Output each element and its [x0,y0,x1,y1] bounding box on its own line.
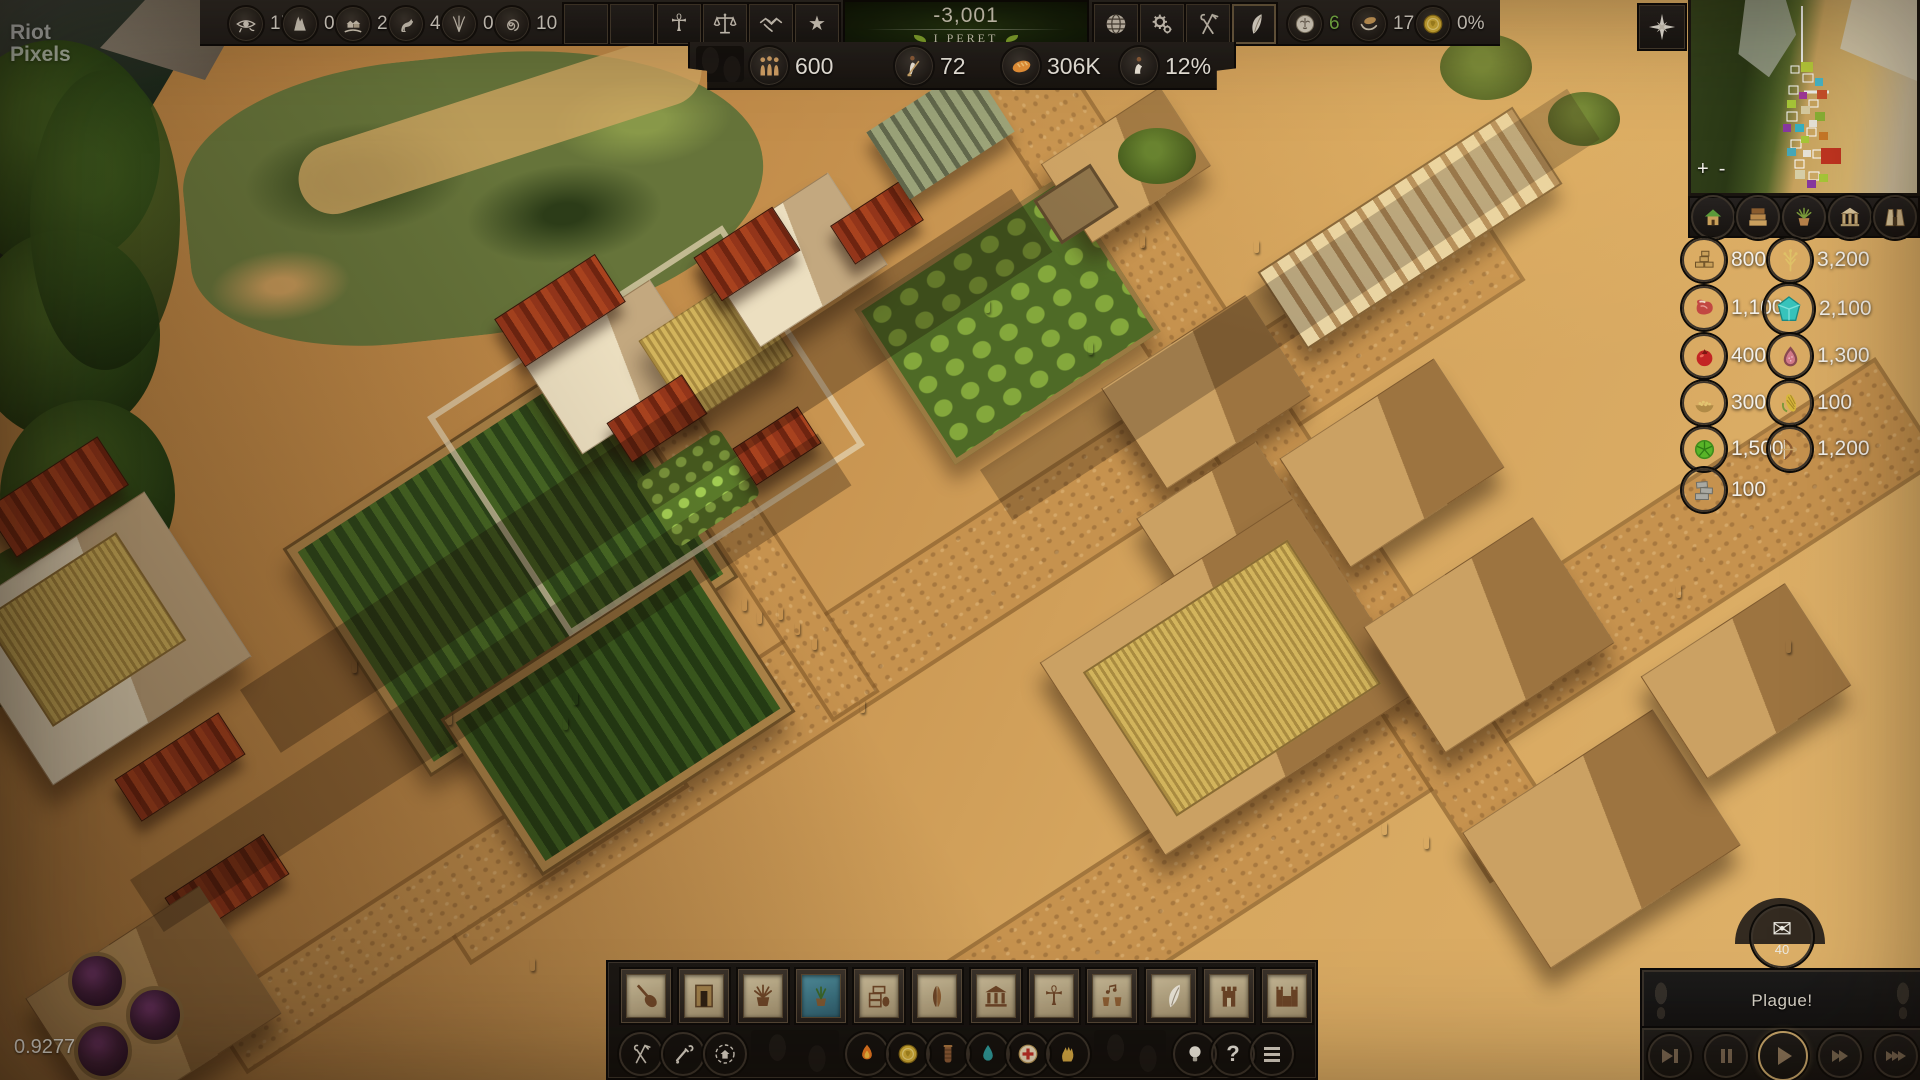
filter-housing-button[interactable] [1691,195,1735,239]
resource-value: 100 [1731,478,1766,502]
watermark: Riot Pixels [10,22,71,66]
grain-bowl-icon [1682,381,1726,425]
envelope-icon: ✉ [1772,918,1792,942]
category-temples-button[interactable] [969,967,1023,1025]
trade-button[interactable] [747,2,795,46]
stat-spiral[interactable]: 10 [493,5,557,43]
lightbulb-icon [1183,1042,1207,1066]
watermark-line2: Pixels [10,44,71,66]
coin-icon [896,1042,920,1066]
messages-count: 40 [1775,942,1789,957]
achievements-button[interactable]: ★ [793,2,841,46]
skip-icon [1662,1049,1678,1063]
recenter-home-button[interactable] [703,1032,747,1076]
resource-turquoise[interactable]: 2,100 [1764,284,1872,334]
droplet-icon [976,1042,1000,1066]
temple-facade-icon [976,974,1016,1018]
pause-button[interactable] [1704,1034,1748,1078]
stat-workers[interactable]: 72 [893,45,966,87]
eye-of-horus-icon [227,5,265,43]
stat-unemployed[interactable]: 12% [1118,45,1211,87]
pillar-icon [936,1042,960,1066]
step-day-button[interactable] [1648,1034,1692,1078]
minimap-zoom-in[interactable]: + [1697,159,1709,179]
overlay-health-button[interactable] [1006,1032,1050,1076]
corn-icon [1768,381,1812,425]
resource-value: 1,300 [1817,344,1870,368]
help-button[interactable]: ? [1211,1032,1255,1076]
resource-value: 1,200 [1817,437,1870,461]
handshake-icon [758,11,784,37]
reed-basket-icon [743,974,783,1018]
ration-hand-icon [1350,5,1388,43]
stone-icon [1682,468,1726,512]
gold-hand-icon [1056,1042,1080,1066]
moon-face-icon [1286,5,1324,43]
jackal-icon [281,5,319,43]
overlay-tax-button[interactable] [886,1032,930,1076]
reeds-icon [440,5,478,43]
world-map-button[interactable] [1092,2,1140,46]
overlay-water-button[interactable] [966,1032,1010,1076]
scribe-button[interactable] [1230,2,1278,46]
notification-panel[interactable]: Plague! [1642,970,1920,1032]
rule-tool-button[interactable] [619,1032,663,1076]
category-education-button[interactable] [1144,967,1198,1025]
pause-icon [1721,1049,1732,1063]
resource-value: 100 [1817,391,1852,415]
resource-value: 3,200 [1817,248,1870,272]
ankh-button[interactable]: ☥ [655,2,703,46]
fastest-icon [1886,1051,1906,1061]
justice-button[interactable] [701,2,749,46]
horn-ornament [1890,978,1916,1022]
bricks-icon [1682,238,1726,282]
medical-cross-icon [1016,1042,1040,1066]
fig-icon [1768,334,1812,378]
picker-tool-button[interactable] [661,1032,705,1076]
resource-value: 2,100 [1819,297,1872,321]
year-value: -3,001 [845,4,1087,28]
stat-jackal[interactable]: 0 [281,5,335,43]
overlay-religion-button[interactable] [1046,1032,1090,1076]
feather-icon [1151,974,1191,1018]
gear-icon [1149,11,1175,37]
feather-icon [1241,11,1267,37]
brick-building-icon [1745,204,1771,230]
category-housing-button[interactable] [677,967,731,1025]
category-monuments-button[interactable] [1260,967,1314,1025]
fast-icon [1832,1050,1848,1062]
home-circle-icon [713,1042,737,1066]
ibis-icon [387,5,425,43]
stat-value: 0 [324,13,335,35]
empty-slot-button[interactable] [608,2,656,46]
bow-icon [1768,427,1812,471]
category-farming-button[interactable] [736,967,790,1025]
wheat-icon [1768,238,1812,282]
crook-flail-icon [629,1042,653,1066]
build-toolbar: ☥ ? [606,960,1318,1080]
stat-reeds[interactable]: 0 [440,5,494,43]
tower-icon [1209,974,1249,1018]
empty-slot-button[interactable] [562,2,610,46]
eyedropper-icon [671,1042,695,1066]
stat-morale[interactable]: 6 [1286,5,1340,43]
world-icon [1103,11,1129,37]
pomegranate-icon [1682,334,1726,378]
music-cups-icon [1092,974,1132,1018]
minimap[interactable]: + - [1688,0,1920,196]
filter-temples-button[interactable] [1828,195,1872,239]
stat-value: 0% [1457,13,1484,35]
workers-value: 72 [940,53,966,80]
scales-icon [712,11,738,37]
play-button[interactable] [1758,1031,1808,1080]
notification-text: Plague! [1751,991,1812,1011]
resource-figs[interactable]: 1,300 [1768,334,1870,378]
compass-star-icon [1647,12,1677,42]
resource-pomegranate[interactable]: 400 [1682,334,1766,378]
stat-value: 10 [536,13,557,35]
turquoise-icon [1764,284,1814,334]
house-icon [1700,204,1726,230]
door-icon [684,974,724,1018]
overlay-structure-button[interactable] [926,1032,970,1076]
idle-person-icon [1118,45,1160,87]
date-divider [867,29,1065,30]
bread-icon [1000,45,1042,87]
resource-wheat[interactable]: 3,200 [1768,238,1870,282]
filter-industry-button[interactable] [1736,195,1780,239]
meat-icon [1682,286,1726,330]
debug-value: 0.9277 [14,1036,75,1059]
water-reeds-icon [801,974,841,1018]
category-religion-button[interactable] [910,967,964,1025]
shelter-icon [334,5,372,43]
filter-farming-button[interactable] [1782,195,1826,239]
shovel-icon [626,974,666,1018]
menu-button[interactable] [1250,1032,1294,1076]
star-icon: ★ [808,14,826,34]
category-military-button[interactable] [1202,967,1256,1025]
horn-ornament [1648,978,1674,1022]
praying-hands-icon [917,974,957,1018]
category-irrigation-button[interactable] [794,967,848,1025]
fast-forward-button[interactable] [1818,1034,1862,1078]
temple-icon [1837,204,1863,230]
population-value: 600 [795,53,833,80]
resource-value: 800 [1731,248,1766,272]
food-value: 306K [1047,53,1101,80]
stat-value: 6 [1329,13,1340,35]
reed-pot-icon [1791,204,1817,230]
worker-icon [893,45,935,87]
population-icon [748,45,790,87]
stat-food[interactable]: 306K [1000,45,1101,87]
fortress-icon [1267,974,1307,1018]
ankh-icon: ☥ [1034,974,1074,1018]
question-icon: ? [1226,1041,1239,1067]
pylon-icon [1882,204,1908,230]
resource-weapons[interactable]: 1,200 [1768,427,1870,471]
ankh-icon: ☥ [670,12,688,36]
resource-value: 400 [1731,344,1766,368]
leaf-icon [1006,35,1018,42]
date-panel[interactable]: -3,001 I Peret [843,0,1089,46]
category-storage-button[interactable] [852,967,906,1025]
ornament [1094,1030,1166,1074]
hamburger-icon [1264,1047,1280,1062]
overlay-fire-button[interactable] [845,1032,889,1076]
minimap-filter-bar [1688,196,1920,238]
stat-value: 17 [1393,13,1414,35]
playback-panel [1642,1028,1920,1080]
game-world [0,0,1920,1080]
resource-stone[interactable]: 100 [1682,468,1766,512]
filter-monuments-button[interactable] [1873,195,1917,239]
stat-rations[interactable]: 17 [1350,5,1414,43]
crook-flail-button[interactable] [1184,2,1232,46]
leaf-icon [914,35,926,42]
top-bar: 15 0 26 44 0 10 ☥ ★ -3,001 [200,0,1500,46]
crook-flail-icon [1195,11,1221,37]
unemployed-value: 12% [1165,53,1211,80]
stat-value: 0 [483,13,494,35]
ornament [751,1030,839,1074]
category-culture-button[interactable] [1085,967,1139,1025]
fastest-forward-button[interactable] [1874,1034,1918,1078]
compass-button[interactable] [1637,3,1687,51]
category-health-button[interactable]: ☥ [1027,967,1081,1025]
category-roads-button[interactable] [619,967,673,1025]
spiral-icon [493,5,531,43]
watermark-line1: Riot [10,22,71,44]
lettuce-icon [1682,427,1726,471]
minimap-terrain: + - [1691,0,1917,193]
game-screen: 15 0 26 44 0 10 ☥ ★ -3,001 [0,0,1920,1080]
flame-icon [855,1042,879,1066]
shade-overlay [0,0,1920,1080]
resource-corn[interactable]: 100 [1768,381,1852,425]
settings-button[interactable] [1138,2,1186,46]
stat-population[interactable]: 600 [748,45,833,87]
crates-icon [859,974,899,1018]
resource-value: 300 [1731,391,1766,415]
play-icon [1778,1047,1792,1065]
minimap-zoom-out[interactable]: - [1719,159,1726,179]
population-bar: 600 72 306K 12% [688,42,1236,90]
messages-button[interactable]: ✉ 40 [1751,906,1813,968]
gold-coin-icon [1414,5,1452,43]
resource-bricks[interactable]: 800 [1682,238,1766,282]
resource-grain[interactable]: 300 [1682,381,1766,425]
stat-taxes[interactable]: 0% [1414,5,1484,43]
